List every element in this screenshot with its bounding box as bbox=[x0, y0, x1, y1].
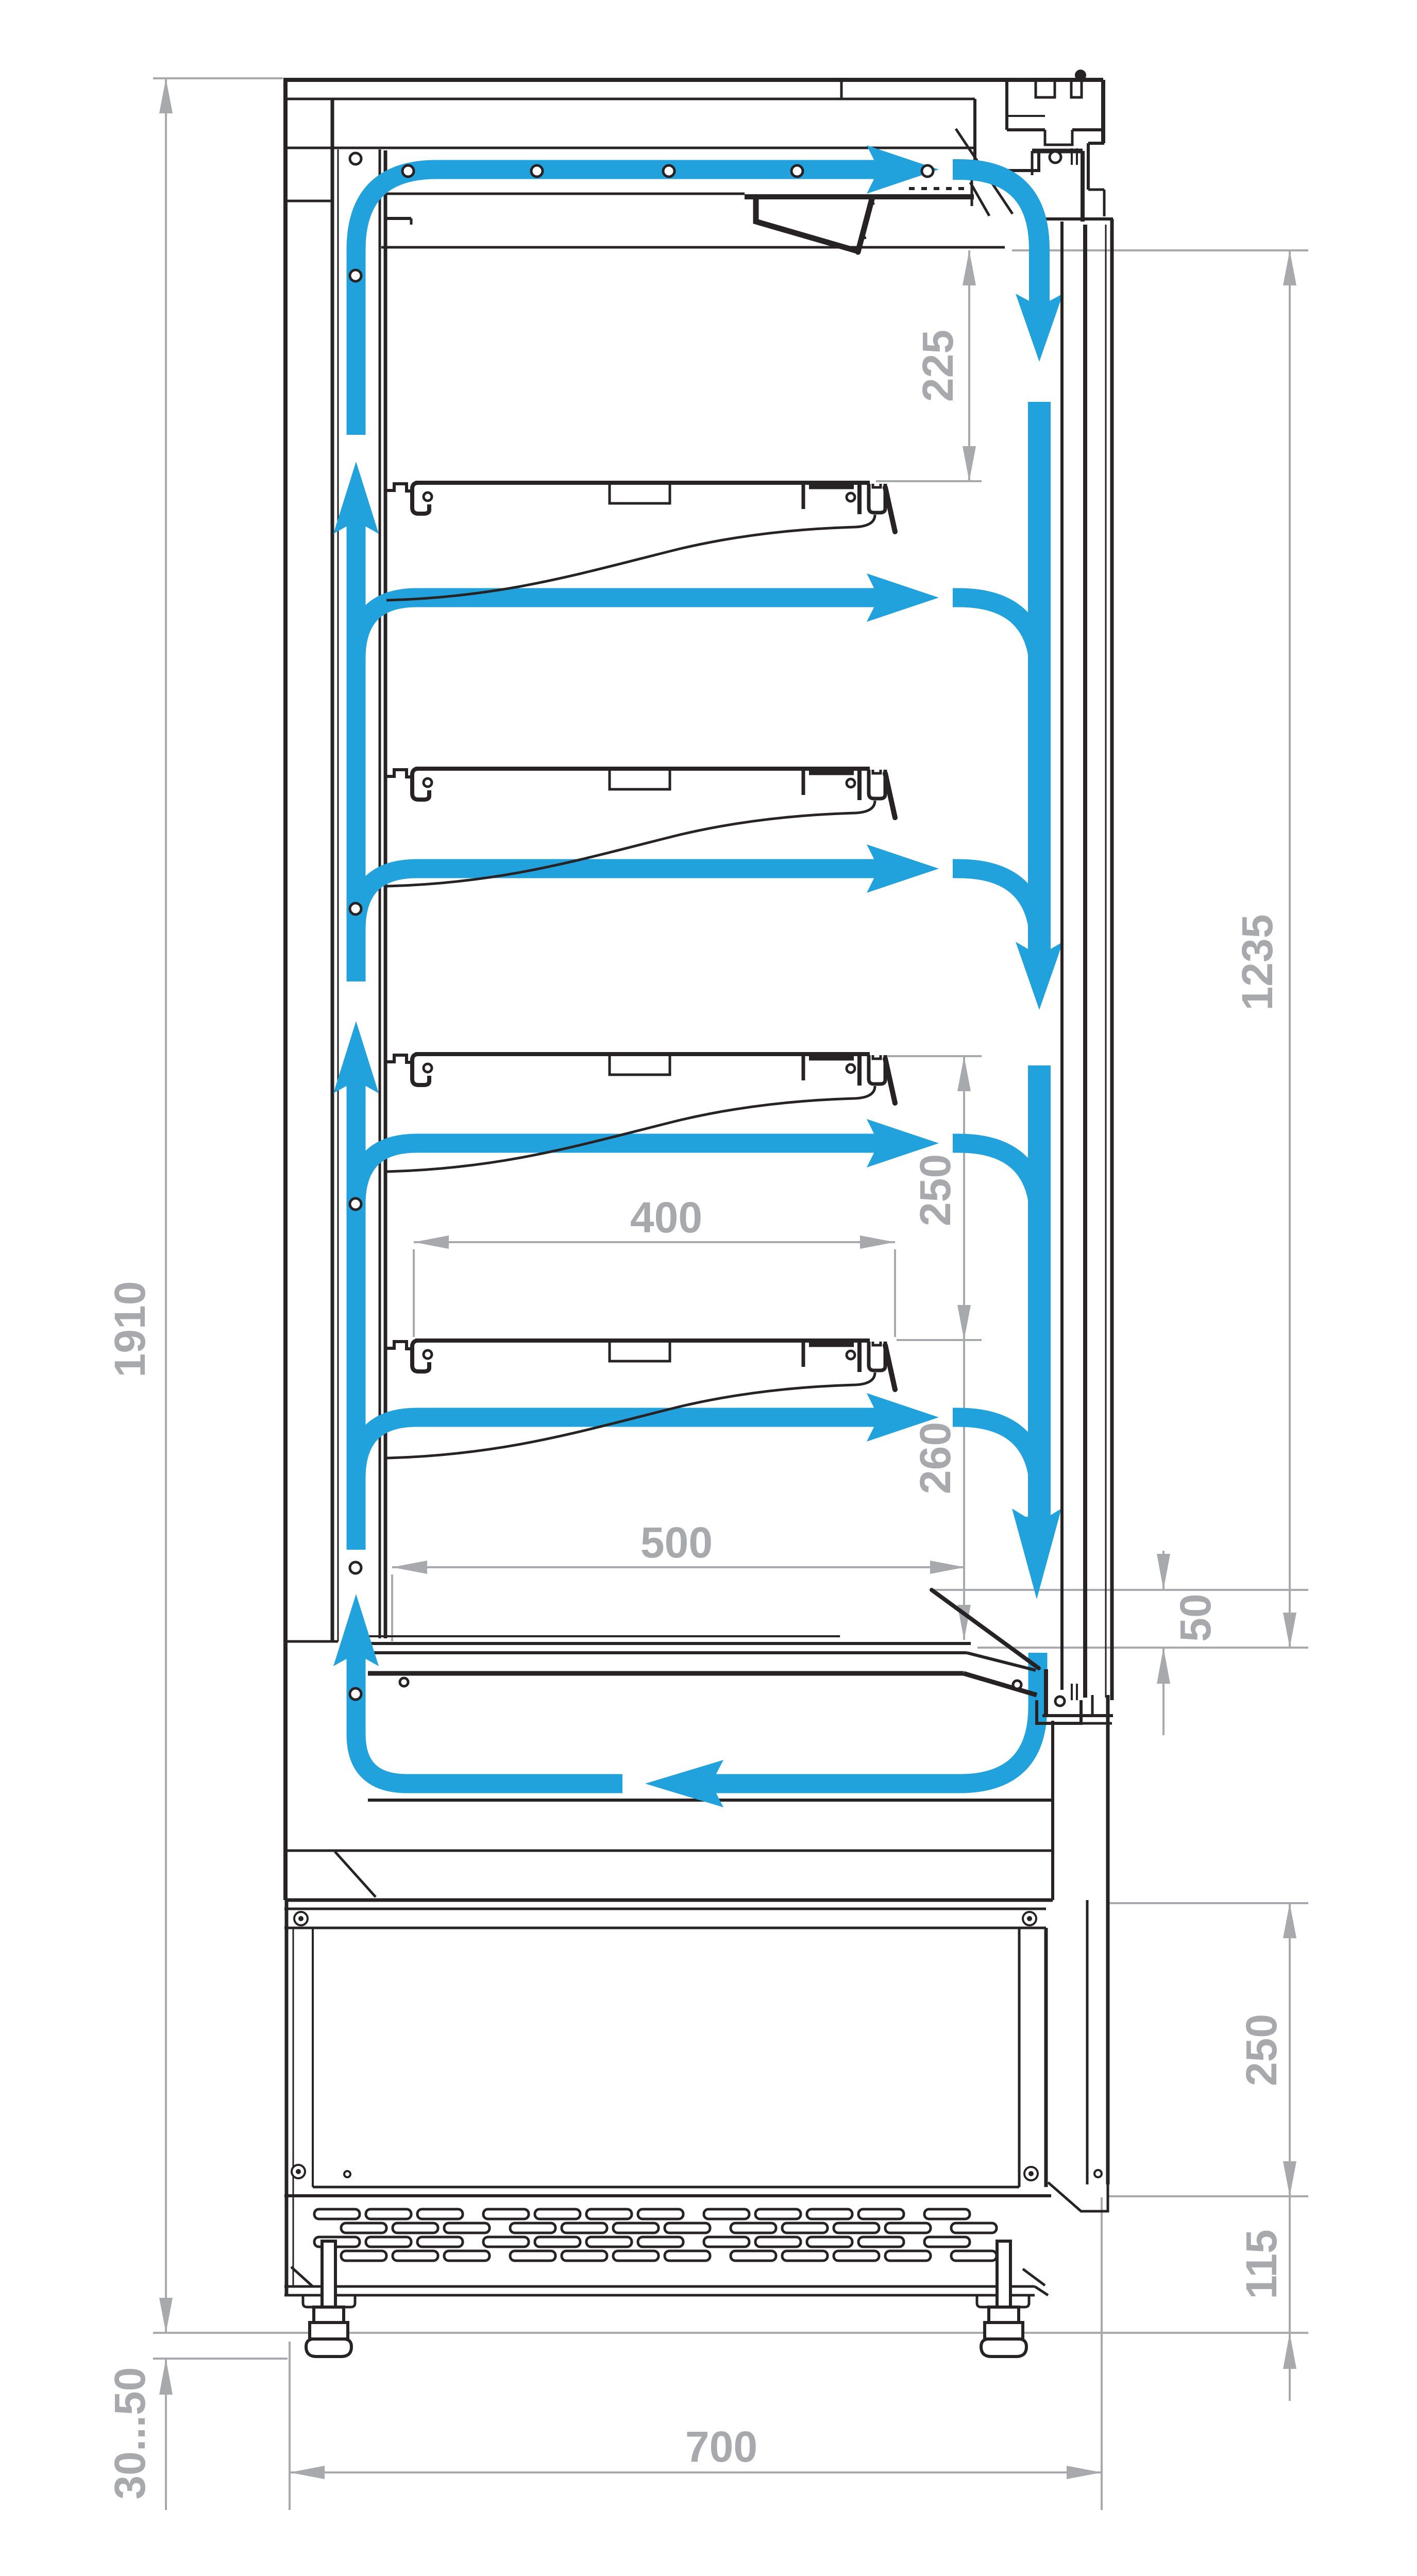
svg-text:30...50: 30...50 bbox=[106, 2367, 154, 2500]
svg-text:400: 400 bbox=[630, 1193, 702, 1242]
svg-text:260: 260 bbox=[911, 1422, 959, 1494]
svg-text:50: 50 bbox=[1171, 1594, 1220, 1641]
svg-text:225: 225 bbox=[914, 330, 962, 402]
svg-text:700: 700 bbox=[685, 2422, 757, 2471]
svg-text:115: 115 bbox=[1237, 2229, 1286, 2299]
svg-text:1910: 1910 bbox=[106, 1281, 154, 1378]
svg-text:500: 500 bbox=[640, 1518, 713, 1567]
svg-text:250: 250 bbox=[1237, 2014, 1286, 2086]
svg-text:1235: 1235 bbox=[1233, 914, 1281, 1011]
svg-text:250: 250 bbox=[911, 1154, 959, 1226]
